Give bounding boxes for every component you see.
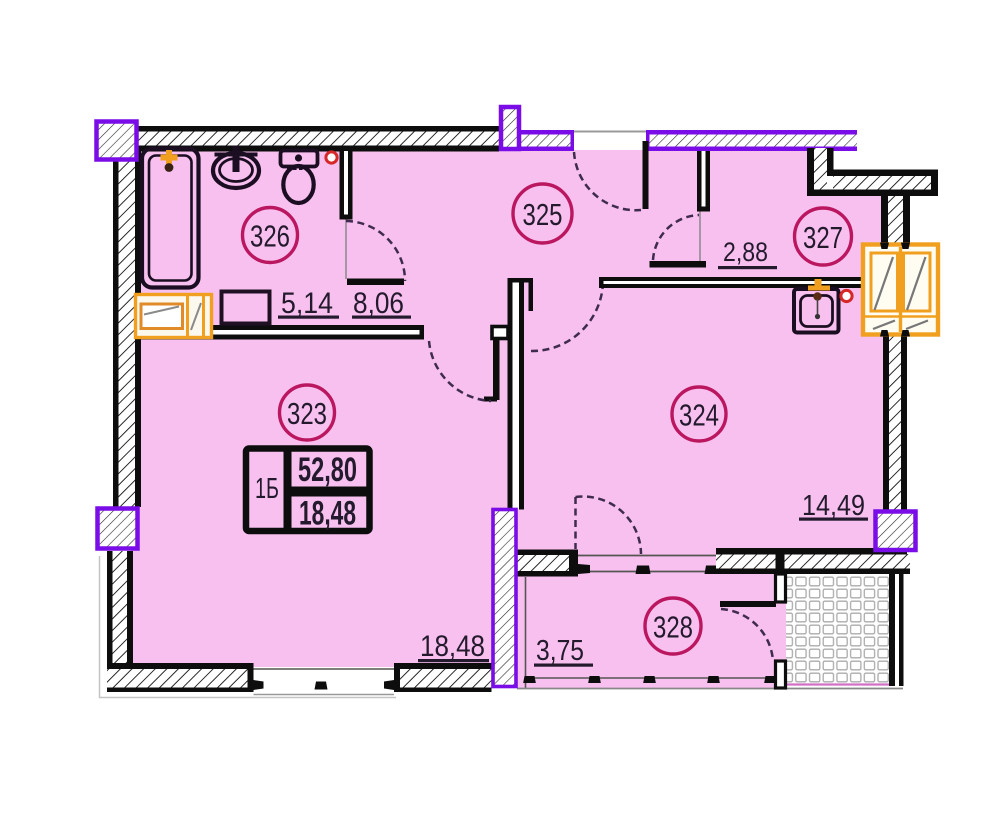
svg-text:3,75: 3,75 <box>536 635 584 667</box>
svg-text:5,14: 5,14 <box>281 287 333 320</box>
svg-text:14,49: 14,49 <box>802 490 865 522</box>
svg-text:326: 326 <box>250 219 290 254</box>
svg-text:325: 325 <box>523 197 563 232</box>
svg-text:327: 327 <box>803 220 843 255</box>
svg-text:324: 324 <box>679 398 719 433</box>
svg-text:2,88: 2,88 <box>723 237 768 267</box>
svg-text:328: 328 <box>653 610 693 645</box>
svg-text:1Б: 1Б <box>255 473 279 505</box>
svg-text:323: 323 <box>287 396 327 431</box>
svg-text:18,48: 18,48 <box>420 630 485 663</box>
svg-text:52,80: 52,80 <box>298 451 357 489</box>
svg-text:8,06: 8,06 <box>353 287 404 320</box>
svg-text:18,48: 18,48 <box>299 495 356 533</box>
